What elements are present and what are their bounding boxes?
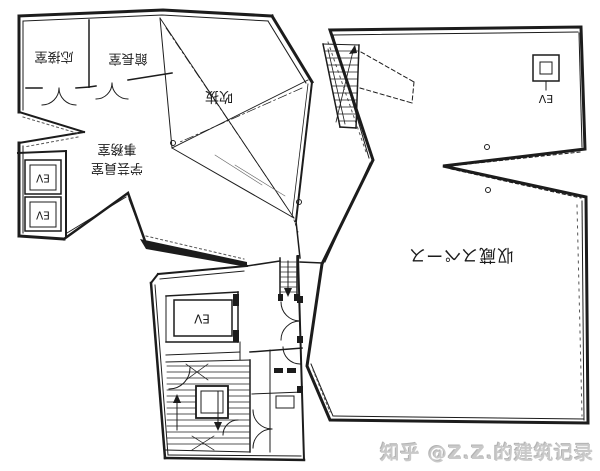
service-core xyxy=(151,256,304,460)
atrium-void xyxy=(160,18,308,218)
room-label-director: 館長室 xyxy=(108,48,147,67)
room-label-storage: 収蔵スペース xyxy=(408,242,514,267)
room-label-curator: 学芸員室 xyxy=(91,157,143,176)
upper-stair xyxy=(323,44,414,128)
ev-label-northeast: EV xyxy=(539,90,553,106)
room-label-office: 事務室 xyxy=(91,138,143,157)
elevator-bank-west xyxy=(18,151,66,236)
room-label-office-block: 学芸員室 事務室 xyxy=(91,138,143,176)
ev-label-west-1: EV xyxy=(36,169,50,184)
plan-linework xyxy=(0,0,600,471)
ev-icon xyxy=(533,55,559,90)
room-label-reception: 応接室 xyxy=(34,46,73,65)
corridor-stair xyxy=(247,256,322,301)
columns xyxy=(171,141,491,205)
room-label-atrium: 吹抜 xyxy=(205,86,233,106)
ev-label-west-2: EV xyxy=(36,206,50,221)
watermark: 知乎 @Z.Z.的建筑记录 xyxy=(380,438,594,465)
ev-label-south: EV xyxy=(194,309,210,326)
floor-plan: 応接室 館長室 吹抜 学芸員室 事務室 EV EV EV EV 収蔵スペース 知… xyxy=(0,0,600,471)
